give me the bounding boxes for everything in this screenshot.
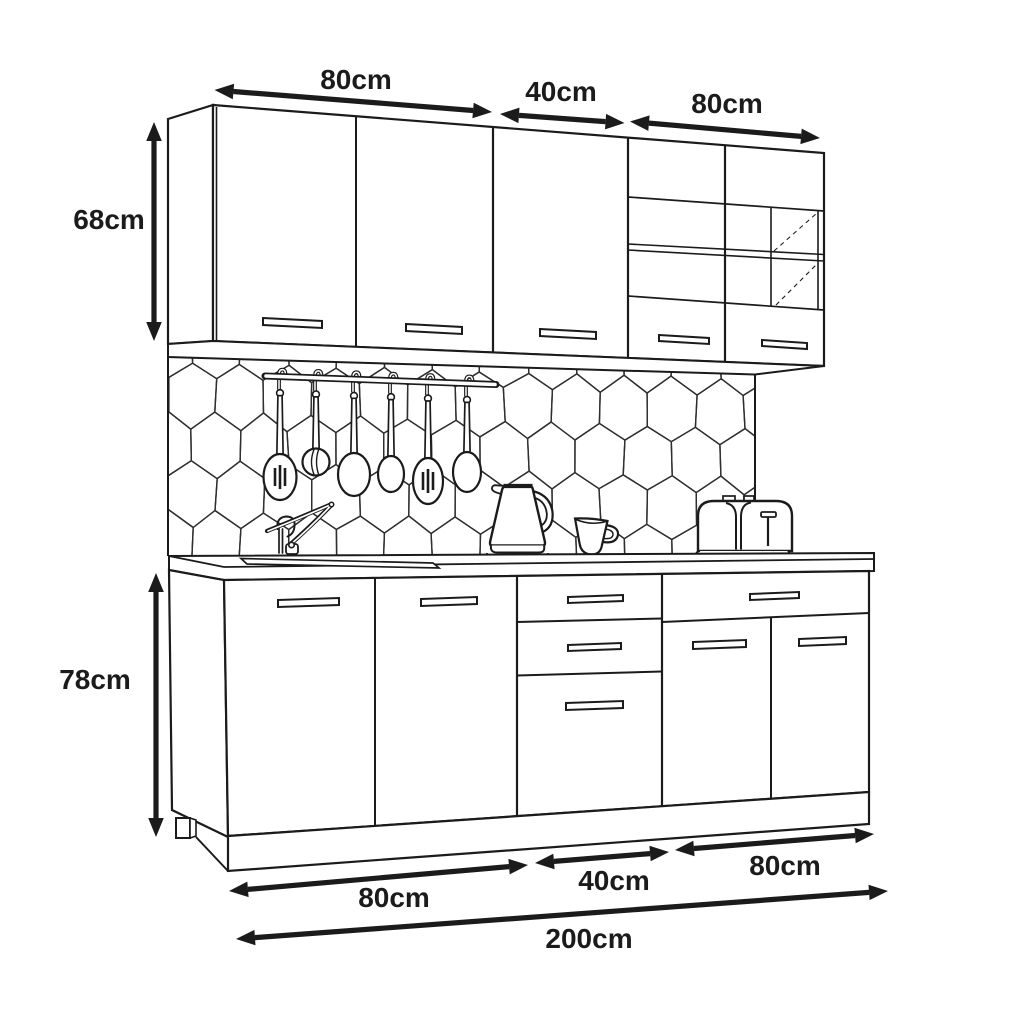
svg-text:80cm: 80cm: [691, 88, 763, 119]
svg-text:200cm: 200cm: [545, 923, 632, 954]
svg-text:80cm: 80cm: [749, 850, 821, 881]
svg-text:80cm: 80cm: [320, 64, 392, 95]
svg-text:68cm: 68cm: [73, 204, 145, 235]
svg-text:80cm: 80cm: [358, 882, 430, 913]
svg-text:40cm: 40cm: [525, 76, 597, 107]
svg-text:78cm: 78cm: [59, 664, 131, 695]
svg-text:40cm: 40cm: [578, 865, 650, 896]
